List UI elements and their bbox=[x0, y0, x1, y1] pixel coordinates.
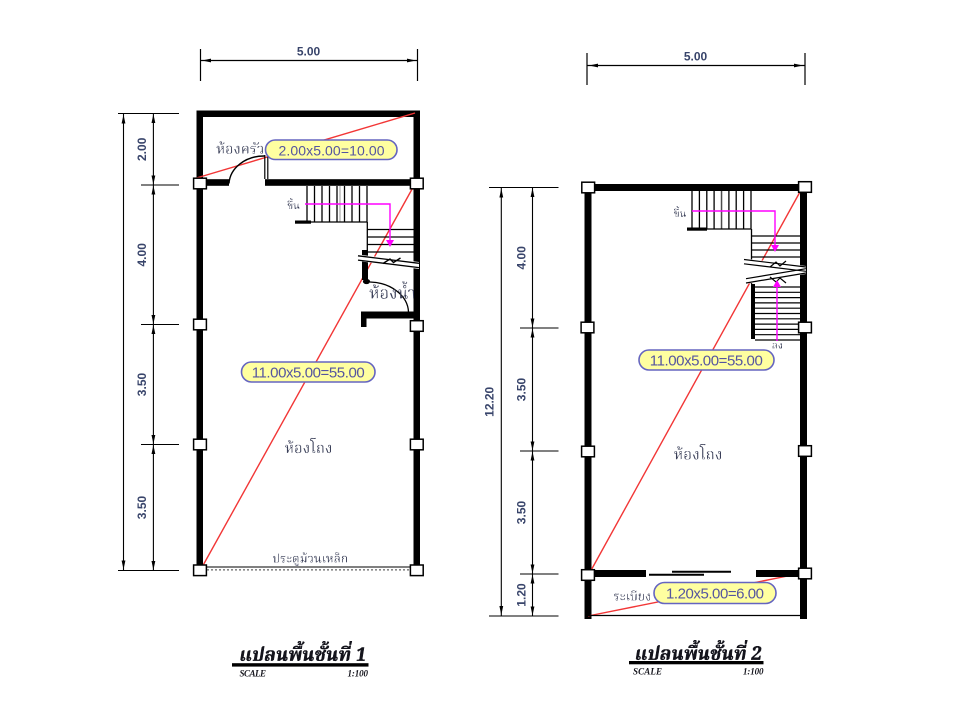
svg-text:3.50: 3.50 bbox=[515, 377, 529, 401]
svg-text:4.00: 4.00 bbox=[135, 243, 149, 267]
svg-text:1.20: 1.20 bbox=[515, 583, 529, 607]
svg-text:1:100: 1:100 bbox=[743, 667, 764, 677]
svg-text:11.00x5.00=55.00: 11.00x5.00=55.00 bbox=[650, 353, 763, 370]
svg-text:1:100: 1:100 bbox=[348, 669, 369, 679]
svg-text:12.20: 12.20 bbox=[483, 386, 497, 416]
svg-text:3.50: 3.50 bbox=[135, 495, 149, 519]
svg-text:3.50: 3.50 bbox=[515, 500, 529, 524]
svg-text:2.00: 2.00 bbox=[135, 137, 149, 161]
svg-text:2.00x5.00=10.00: 2.00x5.00=10.00 bbox=[279, 143, 385, 159]
svg-text:SCALE: SCALE bbox=[633, 667, 662, 677]
svg-text:5.00: 5.00 bbox=[684, 50, 708, 64]
svg-text:3.50: 3.50 bbox=[135, 372, 149, 396]
svg-text:11.00x5.00=55.00: 11.00x5.00=55.00 bbox=[252, 365, 365, 382]
svg-text:SCALE: SCALE bbox=[240, 669, 267, 679]
svg-text:1.20x5.00=6.00: 1.20x5.00=6.00 bbox=[666, 586, 764, 603]
svg-text:5.00: 5.00 bbox=[297, 45, 321, 59]
svg-text:4.00: 4.00 bbox=[515, 246, 529, 270]
